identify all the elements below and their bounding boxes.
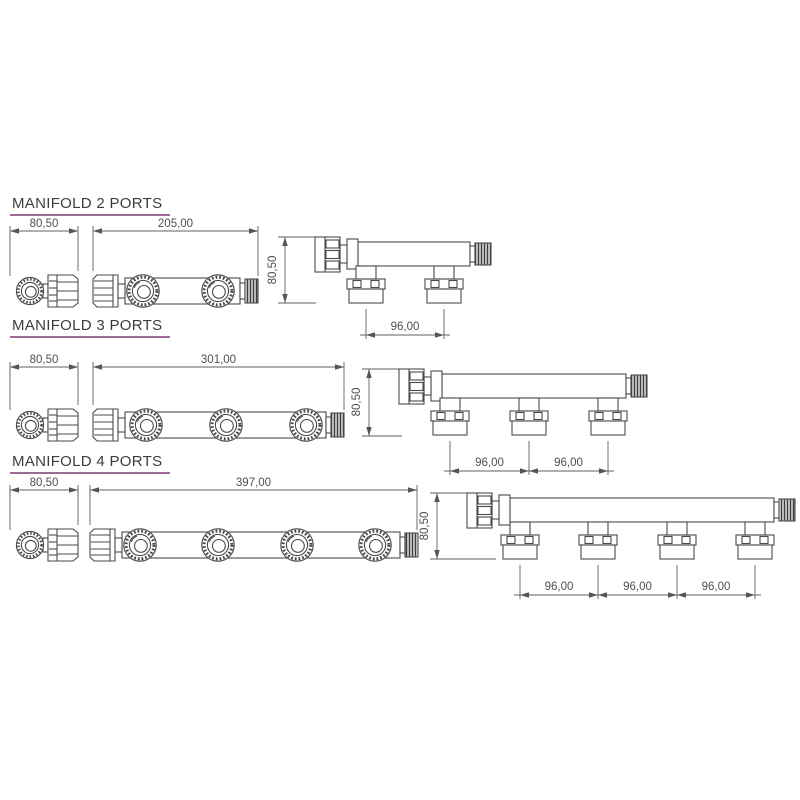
dim-port-spacing-4ports-3: 96,00: [702, 581, 731, 593]
dim-port-spacing-2ports: 96,00: [391, 321, 420, 333]
technical-drawing-canvas: MANIFOLD 2 PORTS MANIFOLD 3 PORTS MANIFO…: [0, 0, 800, 800]
dim-height-4ports: 80,50: [419, 512, 431, 541]
dim-height-2ports: 80,50: [267, 256, 279, 285]
manifold-3ports-side-view: 80,50 96,00 96,00: [351, 369, 647, 475]
manifold-drawings: 80,50 205,00 80,50: [0, 0, 800, 800]
manifold-2ports-top-view: 80,50 205,00: [10, 218, 258, 307]
dim-port-spacing-3ports-2: 96,00: [554, 457, 583, 469]
dim-end-width-2ports: 80,50: [30, 218, 59, 230]
dim-overall-length-4ports: 397,00: [236, 477, 271, 489]
manifold-2ports-side-view: 80,50 96,00: [267, 237, 491, 339]
dim-port-spacing-4ports-2: 96,00: [623, 581, 652, 593]
dim-end-width-3ports: 80,50: [30, 354, 59, 366]
dim-height-3ports: 80,50: [351, 388, 363, 417]
manifold-3ports-top-view: 80,50 301,00: [10, 354, 344, 441]
dim-overall-length-3ports: 301,00: [201, 354, 236, 366]
manifold-4ports-side-view: 80,50 96,00 96,00 96,00: [419, 493, 795, 599]
dim-port-spacing-4ports-1: 96,00: [545, 581, 574, 593]
dim-end-width-4ports: 80,50: [30, 477, 59, 489]
dim-overall-length-2ports: 205,00: [158, 218, 193, 230]
manifold-4ports-top-view: 80,50 397,00: [10, 477, 418, 561]
dim-port-spacing-3ports-1: 96,00: [475, 457, 504, 469]
